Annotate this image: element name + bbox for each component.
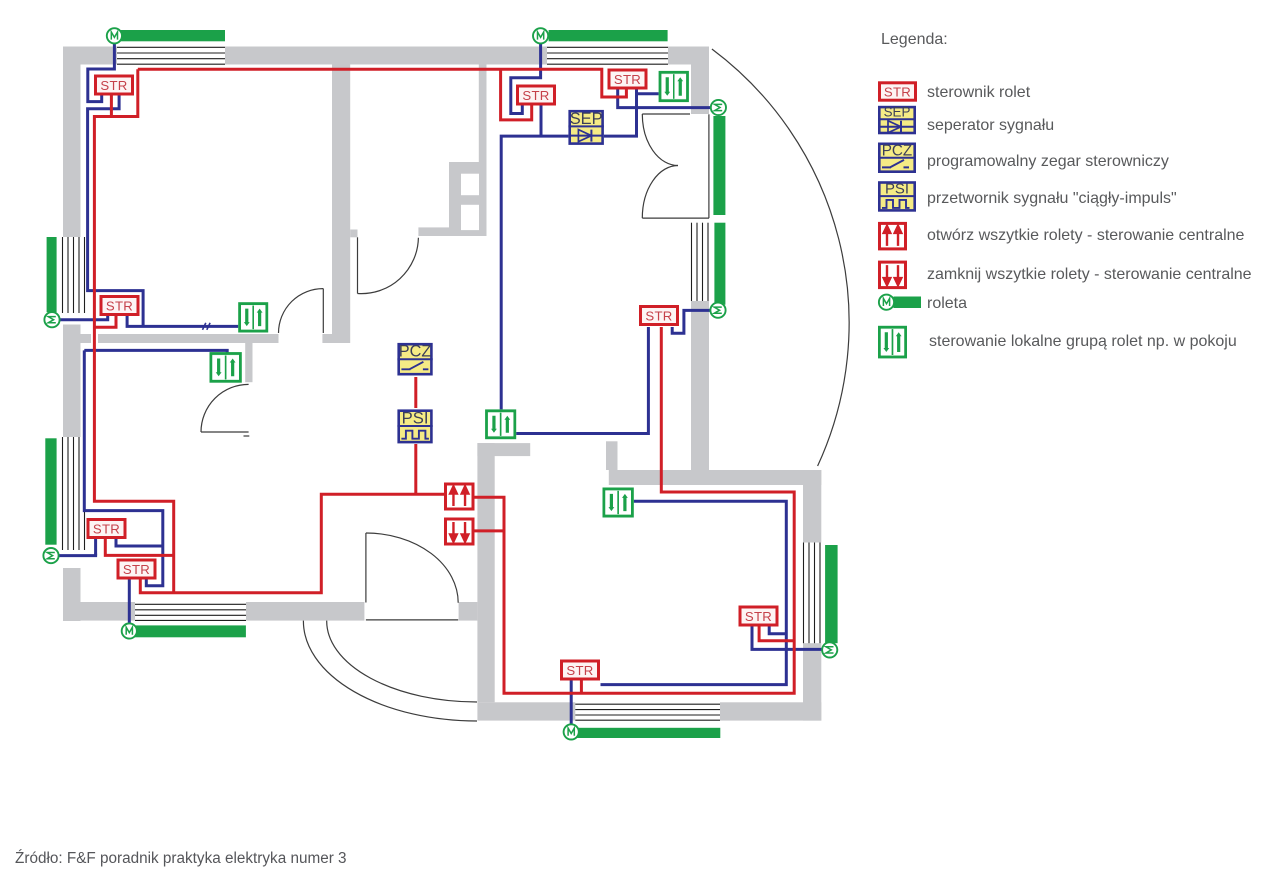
svg-text:STR: STR — [745, 609, 772, 624]
svg-text:seperator sygnału: seperator sygnału — [927, 117, 1054, 134]
svg-text:zamknij wszytkie rolety - ster: zamknij wszytkie rolety - sterowanie cen… — [927, 266, 1252, 283]
svg-text:otwórz wszytkie rolety - stero: otwórz wszytkie rolety - sterowanie cent… — [927, 227, 1245, 244]
svg-text:roleta: roleta — [927, 295, 967, 312]
svg-text:STR: STR — [100, 78, 127, 93]
svg-text:STR: STR — [614, 72, 641, 87]
svg-text:SEP: SEP — [570, 110, 603, 128]
svg-text:SEP: SEP — [884, 105, 911, 120]
svg-text:STR: STR — [106, 298, 133, 313]
svg-text:STR: STR — [93, 521, 120, 536]
svg-text:sterowanie lokalne grupą rolet: sterowanie lokalne grupą rolet np. w pok… — [929, 333, 1237, 350]
svg-text:PCZ: PCZ — [399, 343, 432, 361]
svg-text:Legenda:: Legenda: — [881, 31, 948, 48]
svg-text:programowalny zegar sterownicz: programowalny zegar sterowniczy — [927, 153, 1169, 170]
svg-text:STR: STR — [123, 562, 150, 577]
svg-text:STR: STR — [522, 88, 549, 103]
svg-text:PSI: PSI — [885, 181, 909, 198]
svg-text:STR: STR — [566, 663, 593, 678]
svg-text:STR: STR — [884, 84, 911, 99]
svg-text:sterownik rolet: sterownik rolet — [927, 84, 1031, 101]
svg-text:STR: STR — [645, 308, 672, 323]
svg-text:przetwornik sygnału "ciągły-im: przetwornik sygnału "ciągły-impuls" — [927, 190, 1177, 207]
svg-text:PCZ: PCZ — [882, 142, 913, 159]
svg-text:PSI: PSI — [402, 409, 429, 428]
svg-text:Źródło: F&F poradnik praktyka: Źródło: F&F poradnik praktyka elektryka … — [15, 850, 347, 867]
